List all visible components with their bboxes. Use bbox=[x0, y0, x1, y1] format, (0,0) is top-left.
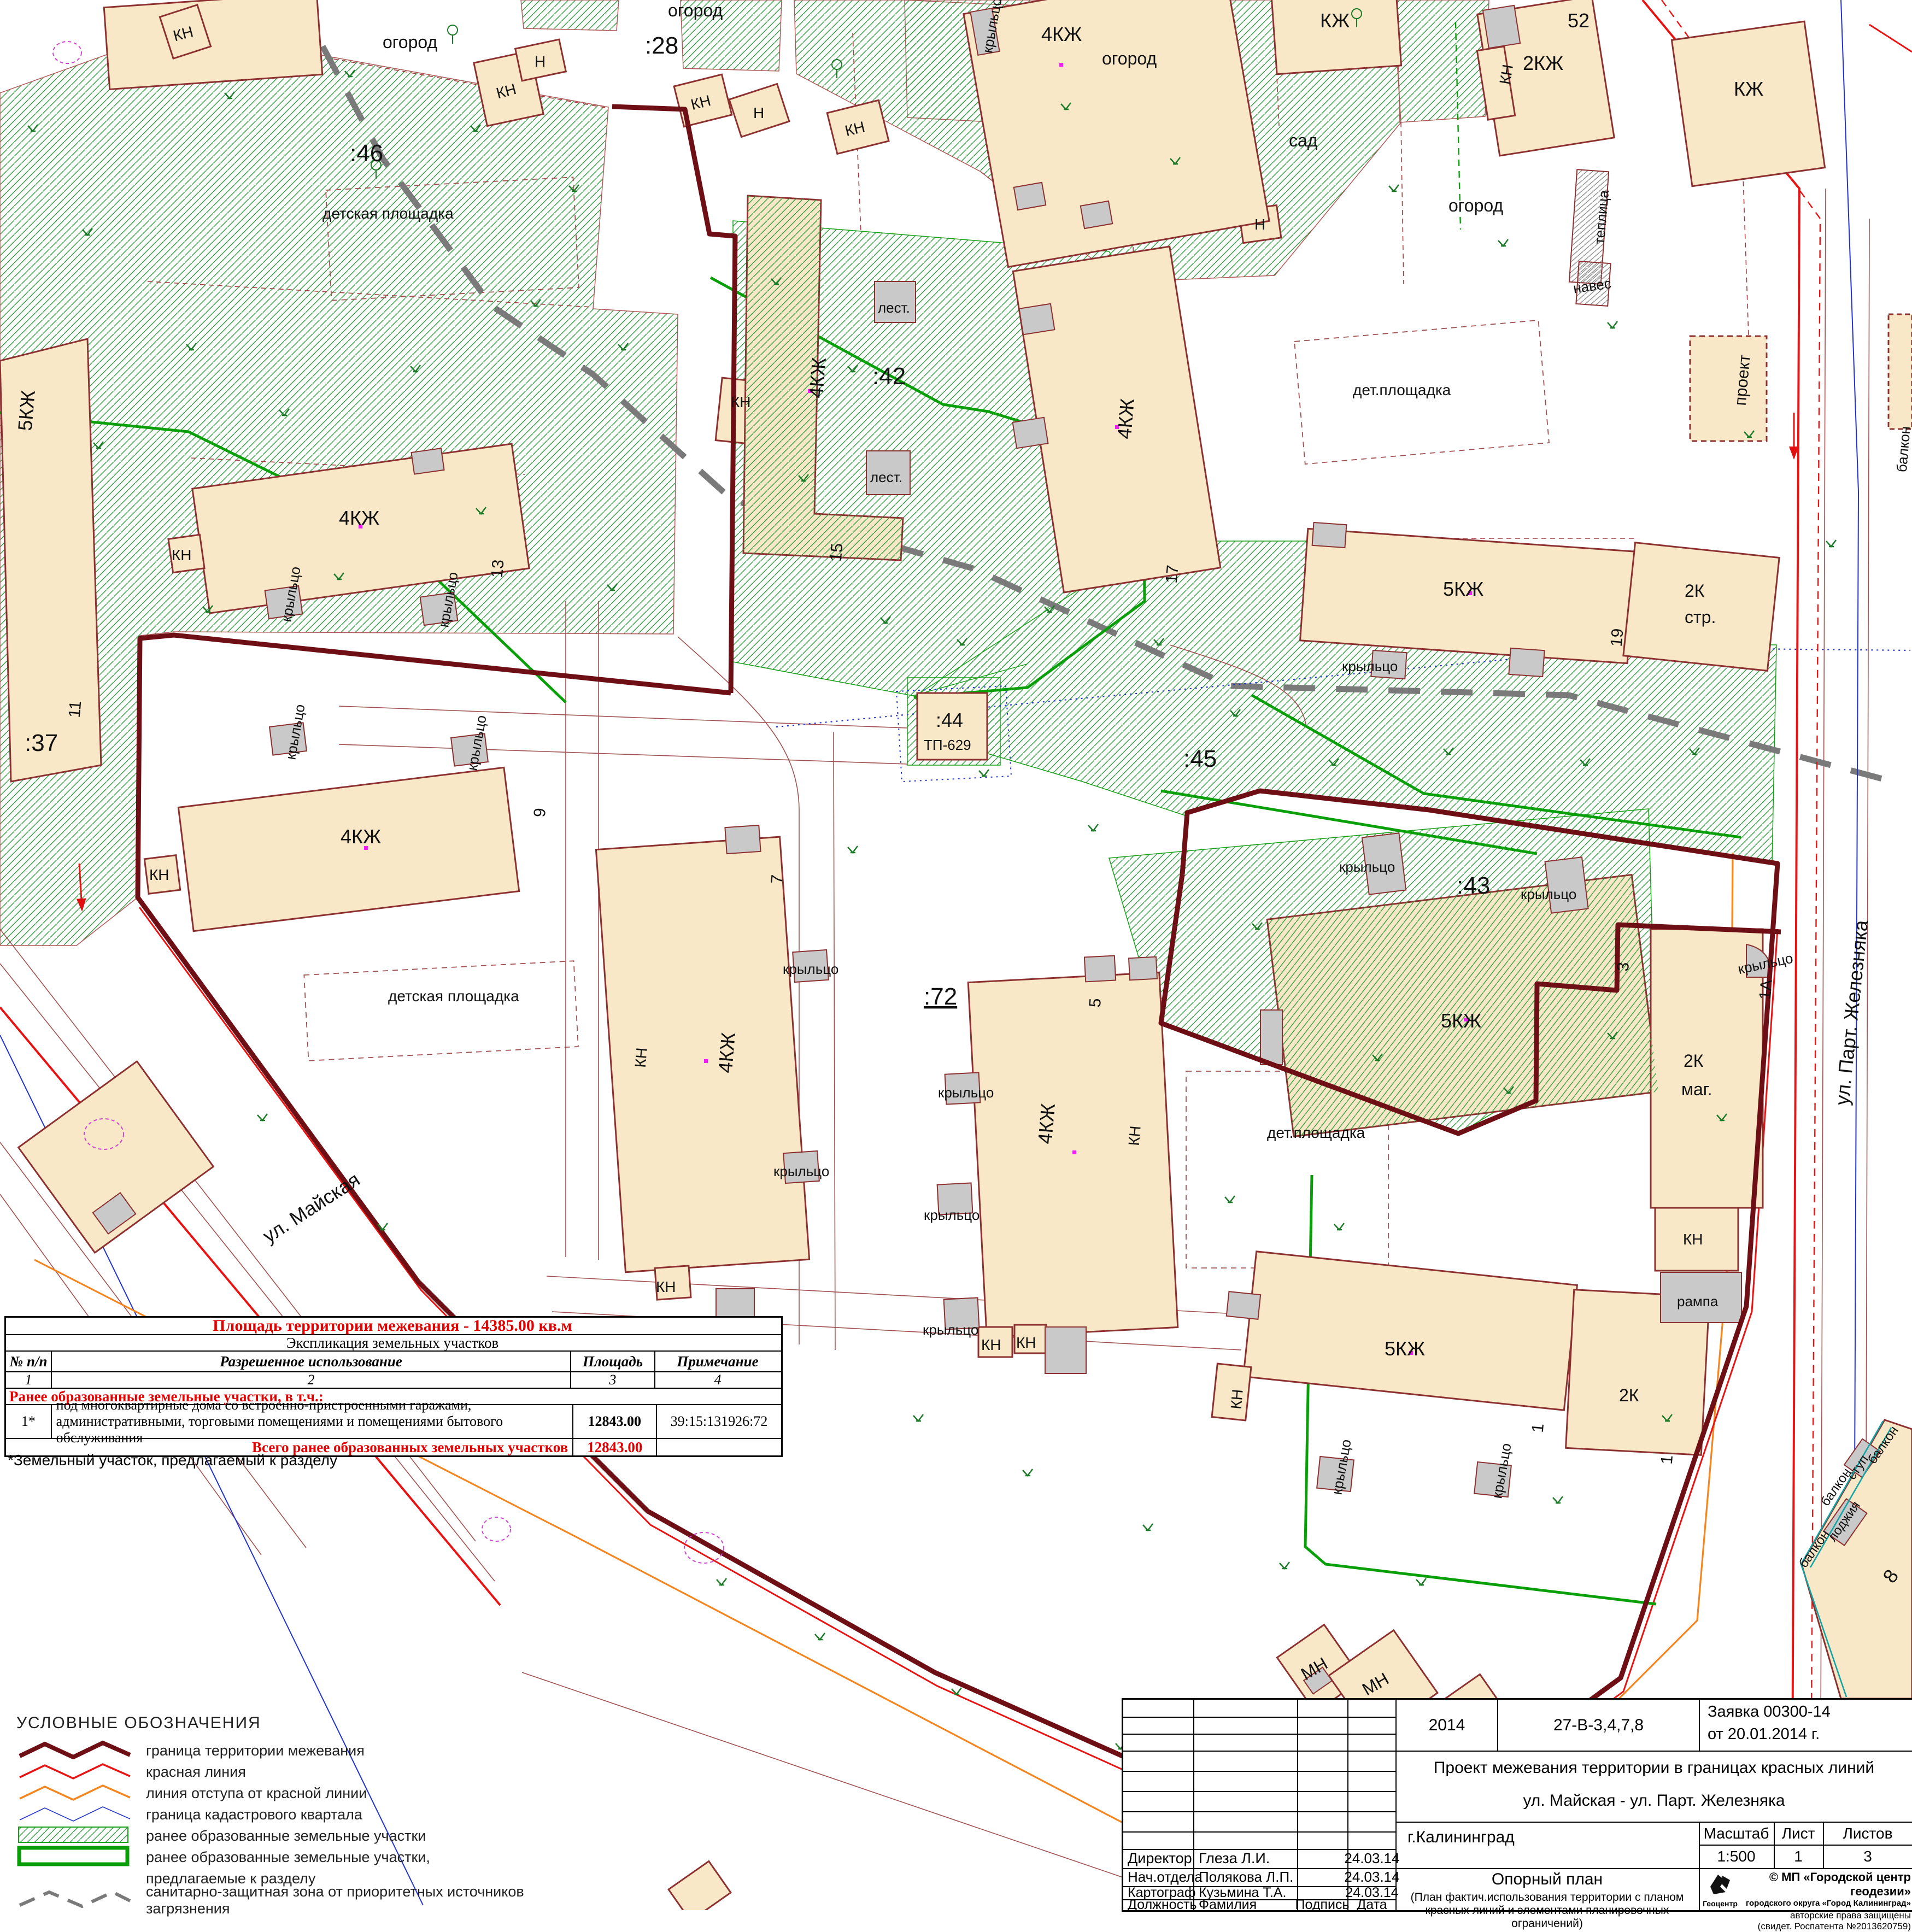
bld-5kzh: 5КЖ bbox=[1443, 578, 1483, 600]
n-label: Н bbox=[535, 53, 546, 70]
lest-label: лест. bbox=[870, 469, 902, 485]
role-director: Директор bbox=[1123, 1849, 1193, 1868]
n-label: Н bbox=[753, 104, 764, 121]
role-dept-head: Нач.отдела bbox=[1123, 1868, 1193, 1886]
krylco-label: крыльцо bbox=[938, 1084, 994, 1101]
footer-date: Дата bbox=[1348, 1899, 1395, 1910]
house-17: 17 bbox=[1163, 564, 1182, 584]
kn-label: КН bbox=[1683, 1231, 1703, 1248]
house-5: 5 bbox=[1086, 997, 1105, 1008]
tb-city: г.Калининград bbox=[1397, 1823, 1698, 1868]
lest-label: лест. bbox=[878, 300, 910, 316]
house-1: 1 bbox=[1658, 1454, 1676, 1465]
bld-4kzh: 4КЖ bbox=[805, 356, 830, 399]
ogorod-label: огород bbox=[1102, 49, 1157, 68]
kn-label: КН bbox=[149, 866, 169, 883]
house-9: 9 bbox=[531, 807, 549, 818]
sad-label: сад bbox=[1289, 131, 1318, 150]
kn-label: КН bbox=[1496, 63, 1516, 85]
tb-sheets: 3 bbox=[1824, 1846, 1911, 1868]
bld-kzh: КЖ bbox=[1320, 9, 1350, 32]
row-num: 1* bbox=[6, 1405, 51, 1438]
tb-code: 27-В-3,4,7,8 bbox=[1498, 1700, 1699, 1751]
ogorod-label: огород bbox=[383, 32, 437, 52]
kn-label: КН bbox=[731, 394, 751, 410]
tb-project-1: Проект межевания территории в границах к… bbox=[1397, 1752, 1911, 1784]
det-ploshchadka-label: детская площадка bbox=[322, 205, 454, 222]
quartal-symbol bbox=[16, 1804, 134, 1823]
bld-2k: 2К bbox=[1685, 581, 1705, 601]
explication-table: Площадь территории межевания - 14385.00 … bbox=[4, 1316, 783, 1457]
house-52: 52 bbox=[1568, 9, 1590, 32]
table-subtitle: Экспликация земельных участков bbox=[6, 1335, 779, 1350]
tp-label: ТП-629 bbox=[924, 737, 971, 753]
tb-year: 2014 bbox=[1397, 1700, 1497, 1751]
street-zheleznyaka: ул. Парт. Железняка bbox=[1831, 918, 1872, 1106]
tb-plan-desc-1: (План фактич.использования территории с … bbox=[1397, 1891, 1698, 1904]
cadastral-map: огород огород огород огород сад :46 :28 … bbox=[0, 0, 1912, 1910]
col-num: № п/п bbox=[6, 1352, 51, 1371]
idx-4: 4 bbox=[654, 1372, 780, 1388]
tb-plan-name: Опорный план bbox=[1397, 1870, 1698, 1889]
house-3: 3 bbox=[1614, 961, 1633, 972]
kn-label: КН bbox=[172, 547, 192, 563]
bld-5kzh: 5КЖ bbox=[14, 389, 39, 432]
parcel-28: :28 bbox=[645, 32, 678, 59]
setback-symbol bbox=[16, 1782, 134, 1802]
name-director: Глеза Л.И. bbox=[1194, 1849, 1296, 1868]
tb-logo-caption: Геоцентр bbox=[1701, 1899, 1739, 1908]
boundary-symbol bbox=[16, 1740, 134, 1759]
total-area: 12843.00 bbox=[587, 1439, 642, 1456]
legend: УСЛОВНЫЕ ОБОЗНАЧЕНИЯ граница территории … bbox=[16, 1714, 552, 1911]
col-use: Разрешенное использование bbox=[51, 1352, 570, 1371]
bld-2kzh: 2КЖ bbox=[1523, 52, 1563, 74]
bld-4kzh: 4КЖ bbox=[1041, 23, 1082, 45]
legend-item: ранее образованные земельные участки bbox=[146, 1828, 426, 1845]
tb-request-1: Заявка 00300-14 bbox=[1700, 1703, 1910, 1721]
kn-label: КН bbox=[1228, 1389, 1246, 1410]
bld-4kzh: 4КЖ bbox=[341, 825, 381, 848]
parcel-44: :44 bbox=[936, 709, 963, 731]
det-pl-label: дет.площадка bbox=[1353, 381, 1451, 398]
legend-item: санитарно-защитная зона от приоритетных … bbox=[146, 1883, 552, 1917]
kn-label: КН bbox=[632, 1047, 650, 1068]
tb-org-3: авторские права защищены bbox=[1740, 1910, 1911, 1921]
house-11: 11 bbox=[66, 700, 85, 719]
legend-item: ранее образованные земельные участки, bbox=[146, 1849, 430, 1866]
table-title: Площадь территории межевания - 14385.00 … bbox=[213, 1317, 572, 1335]
krylco-label: крыльцо bbox=[1342, 658, 1398, 674]
legend-item: линия отступа от красной линии bbox=[146, 1785, 367, 1802]
date-director: 24.03.14 bbox=[1348, 1849, 1395, 1868]
legend-item: красная линия bbox=[146, 1764, 246, 1781]
tb-org-1: © МП «Городской центр геодезии» bbox=[1740, 1870, 1911, 1899]
krylco-label: крыльцо bbox=[1521, 886, 1576, 902]
krylco-label: крыльцо bbox=[923, 1322, 978, 1338]
formed-parcel-symbol bbox=[16, 1825, 134, 1845]
parcel-46: :46 bbox=[350, 140, 383, 167]
bld-2k: 2К bbox=[1619, 1385, 1639, 1405]
name-dept-head: Полякова Л.П. bbox=[1194, 1868, 1296, 1886]
ogorod-label: огород bbox=[668, 1, 723, 20]
legend-item: граница кадастрового квартала bbox=[146, 1806, 362, 1823]
title-block: Директор Глеза Л.И. 24.03.14 Нач.отдела … bbox=[1122, 1698, 1912, 1912]
idx-3: 3 bbox=[570, 1372, 654, 1388]
house-7: 7 bbox=[768, 874, 787, 885]
legend-item: граница территории межевания bbox=[146, 1742, 365, 1759]
footer-role: Должность bbox=[1123, 1899, 1193, 1910]
n-label: Н bbox=[1254, 216, 1265, 233]
col-note: Примечание bbox=[654, 1352, 780, 1371]
idx-1: 1 bbox=[6, 1372, 51, 1388]
row-area: 12843.00 bbox=[572, 1405, 656, 1438]
bld-4kzh: 4КЖ bbox=[1113, 397, 1139, 440]
tb-request-2: от 20.01.2014 г. bbox=[1700, 1725, 1910, 1743]
footer-sign: Подпись bbox=[1298, 1899, 1346, 1910]
row-use-1: под многоквартирные дома со встроенно-пр… bbox=[56, 1397, 472, 1413]
det-pl-label: дет.площадка bbox=[1267, 1124, 1365, 1141]
red-line-symbol bbox=[16, 1761, 134, 1781]
house-15: 15 bbox=[827, 542, 847, 562]
tb-plan-desc-2: красных линий и элементами планировочных… bbox=[1397, 1904, 1698, 1930]
krylco-label: крыльцо bbox=[773, 1163, 829, 1179]
table-footnote: *Земельный участок, предлагаемый к разде… bbox=[8, 1452, 337, 1469]
bld-5kzh: 5КЖ bbox=[1385, 1337, 1425, 1360]
tb-sheet-label: Лист bbox=[1775, 1823, 1822, 1845]
parcel-37: :37 bbox=[25, 730, 58, 756]
parcel-72: :72 bbox=[924, 983, 957, 1010]
parcel-43: :43 bbox=[1457, 872, 1490, 899]
det-ploshchadka-label: детская площадка bbox=[388, 988, 519, 1005]
tb-sheets-label: Листов bbox=[1824, 1823, 1911, 1845]
parcel-45: :45 bbox=[1183, 745, 1217, 772]
house-1: 1 bbox=[1529, 1423, 1547, 1434]
bld-4kzh: 4КЖ bbox=[1034, 1102, 1059, 1145]
kn-label: КН bbox=[656, 1278, 676, 1295]
house-19: 19 bbox=[1608, 627, 1627, 647]
bld-2k: 2К bbox=[1684, 1051, 1704, 1071]
tb-org-2: городского округа «Город Калининград» bbox=[1740, 1899, 1911, 1908]
balkon-label: балкон bbox=[1893, 425, 1912, 473]
tb-org-4: (свидет. Роспатента №2013620759) bbox=[1740, 1921, 1911, 1932]
row-note: 39:15:131926:72 bbox=[656, 1405, 781, 1438]
legend-title: УСЛОВНЫЕ ОБОЗНАЧЕНИЯ bbox=[16, 1714, 552, 1733]
tb-scale-label: Масштаб bbox=[1700, 1823, 1773, 1845]
bld-4kzh: 4КЖ bbox=[714, 1031, 740, 1074]
bld-4kzh: 4КЖ bbox=[339, 507, 379, 529]
krylco-label: крыльцо bbox=[1339, 859, 1395, 875]
house-1a: 1А bbox=[1756, 979, 1776, 1000]
ogorod-label: огород bbox=[1448, 196, 1503, 215]
date-dept-head: 24.03.14 bbox=[1348, 1868, 1395, 1886]
geocentr-logo-icon bbox=[1706, 1870, 1734, 1896]
sanitary-symbol bbox=[16, 1888, 134, 1910]
tb-sheet: 1 bbox=[1775, 1846, 1822, 1868]
bld-mag: маг. bbox=[1681, 1079, 1712, 1099]
krylco-label: крыльцо bbox=[924, 1207, 980, 1223]
kn-label: КН bbox=[1125, 1125, 1144, 1147]
bld-kzh: КЖ bbox=[1734, 78, 1763, 100]
tb-scale: 1:500 bbox=[1700, 1846, 1773, 1868]
split-parcel-symbol bbox=[16, 1845, 134, 1867]
idx-2: 2 bbox=[51, 1372, 570, 1388]
col-area: Площадь bbox=[570, 1352, 654, 1371]
bld-5kzh: 5КЖ bbox=[1441, 1009, 1481, 1032]
house-13: 13 bbox=[488, 559, 508, 578]
street-mayskaya: ул. Майская bbox=[259, 1168, 363, 1247]
bld-str: стр. bbox=[1685, 607, 1716, 627]
parcel-42: :42 bbox=[872, 363, 906, 390]
tb-project-2: ул. Майская - ул. Парт. Железняка bbox=[1397, 1784, 1911, 1817]
kn-label: КН bbox=[981, 1336, 1001, 1353]
kn-label: КН bbox=[1016, 1334, 1036, 1351]
footer-name: Фамилия bbox=[1194, 1899, 1296, 1910]
krylco-label: крыльцо bbox=[783, 961, 838, 977]
rampa-label: рампа bbox=[1677, 1293, 1719, 1309]
